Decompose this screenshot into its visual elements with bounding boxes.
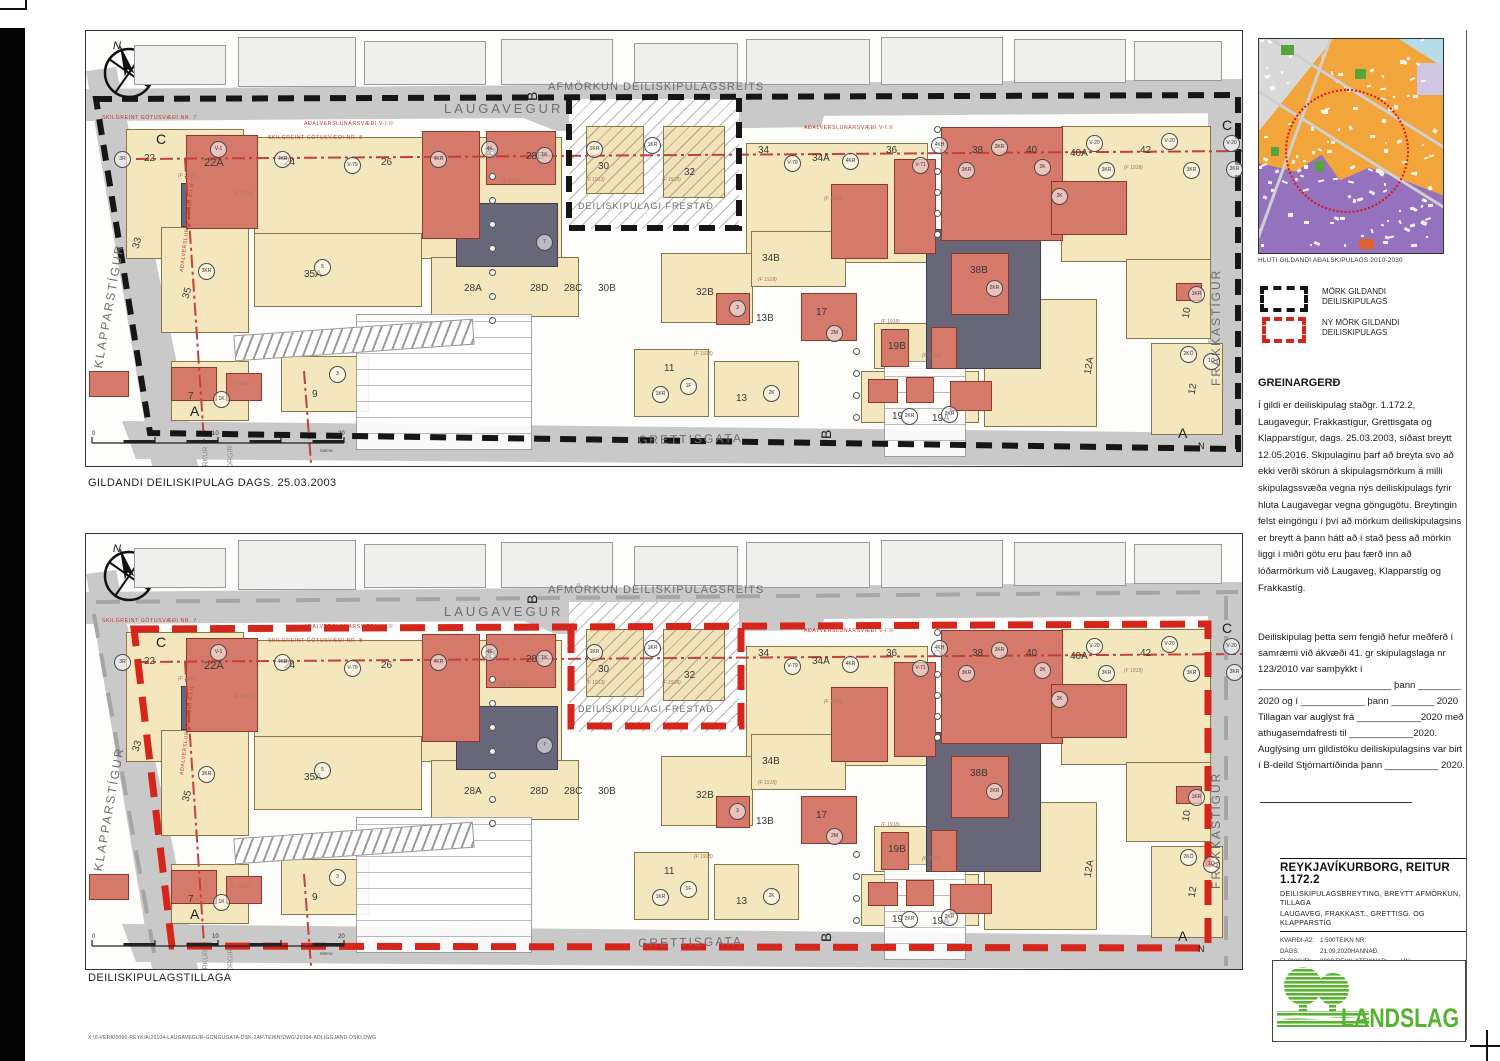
area-highlight-circle bbox=[1285, 89, 1409, 213]
zoning-badge: 4K bbox=[481, 141, 498, 158]
lot-line-dot bbox=[853, 873, 860, 880]
build-year-note: (F 1918) bbox=[502, 682, 521, 688]
zoning-badge: V-20 bbox=[1086, 135, 1103, 152]
street-name-fragment: ORGIR bbox=[228, 446, 235, 467]
zoning-badge: 1KR bbox=[644, 137, 661, 154]
building-red bbox=[226, 876, 262, 904]
title-block-cell: HANNAÐ: bbox=[1351, 947, 1393, 958]
parcel bbox=[634, 852, 709, 920]
approval-line: Tillagan var auglýst frá ____________202… bbox=[1258, 710, 1465, 726]
adjacent-building bbox=[746, 39, 870, 85]
section-letter: B bbox=[818, 430, 834, 439]
adjacent-building bbox=[881, 37, 1003, 85]
parcel bbox=[161, 227, 249, 333]
map-building bbox=[1340, 217, 1345, 220]
lot-line-dot bbox=[489, 724, 496, 731]
lot-number: 40 bbox=[1026, 648, 1037, 659]
map-building bbox=[1383, 241, 1389, 245]
section-letter: N bbox=[1198, 944, 1205, 954]
report-line: lóðarmörkum við Laugaveg, Klapparstíg og bbox=[1258, 564, 1461, 581]
plan-proposal-caption: DEILISKIPULAGSTILLAGA bbox=[88, 972, 232, 984]
adjacent-building bbox=[881, 540, 1003, 588]
zoning-badge: 2K bbox=[763, 888, 780, 905]
title-block-row: DAGS:21.09.2020HANNAÐ: bbox=[1280, 947, 1466, 958]
build-year-note: (F 1918) bbox=[824, 699, 843, 705]
legend-label-1: NÝ MÖRK GILDANDIDEILISKIPULAGS bbox=[1322, 318, 1399, 338]
zoning-badge: 3KR bbox=[198, 766, 215, 783]
zoning-badge: 2M bbox=[826, 325, 843, 342]
report-line: Laugavegur, Frakkastígur, Grettisgata og bbox=[1258, 415, 1461, 432]
section-letter: B bbox=[524, 92, 540, 101]
adjacent-building bbox=[238, 540, 356, 590]
lot-line-dot bbox=[853, 370, 860, 377]
zoning-badge: 2K bbox=[1034, 159, 1051, 176]
adjacent-building bbox=[634, 43, 738, 83]
sheet: N01020Metrar3123252729313335373941434522… bbox=[0, 0, 1500, 1061]
map-building bbox=[1411, 207, 1414, 210]
zoning-badge: 2KÖ bbox=[1180, 849, 1197, 866]
lot-line-dot bbox=[489, 820, 496, 827]
map-building bbox=[1413, 94, 1418, 97]
build-year-note: (F 1918) bbox=[881, 319, 900, 325]
lot-number: 11 bbox=[664, 866, 674, 877]
street-name: FRAKKASTÍGUR bbox=[1209, 772, 1223, 889]
zoning-badge: 2K bbox=[1034, 662, 1051, 679]
map-building bbox=[1264, 74, 1270, 79]
title-block-subtitle-2: LAUGAVEG, FRAKKAST., GRETTISG. OG KLAPPA… bbox=[1280, 909, 1466, 927]
zoning-badge: 3KR bbox=[1098, 665, 1115, 682]
lot-number: 17 bbox=[816, 307, 827, 318]
adjacent-building bbox=[364, 544, 486, 588]
zoning-badge: 4KR bbox=[274, 654, 291, 671]
zoning-badge: 7 bbox=[536, 234, 553, 251]
lot-number: 11 bbox=[664, 363, 674, 374]
parcel bbox=[634, 349, 709, 417]
report-line: Frakkastíg. bbox=[1258, 581, 1461, 598]
map-building bbox=[1330, 221, 1335, 224]
lot-line-dot bbox=[489, 197, 496, 204]
building-red bbox=[950, 884, 992, 914]
section-letter: B bbox=[524, 595, 540, 604]
zoning-badge: 2KR bbox=[901, 408, 918, 425]
lot-number: 26 bbox=[381, 157, 392, 168]
adjacent-building bbox=[1134, 41, 1222, 81]
build-year-note: (F 1913) bbox=[586, 177, 605, 183]
report-line: er breytt á þann hátt að í stað þess að … bbox=[1258, 531, 1461, 548]
lot-number: 7 bbox=[188, 391, 194, 402]
lot-number: 34 bbox=[758, 145, 769, 156]
street-name-fragment: ORGIR bbox=[228, 949, 235, 970]
map-building bbox=[1281, 71, 1284, 74]
section-letter: C bbox=[1222, 117, 1232, 133]
zoning-badge: 2KR bbox=[901, 911, 918, 928]
zone-text: SKILGREINT GÖTUSVÆÐI NR. 8 bbox=[268, 638, 363, 644]
crop-mark-bottom-right bbox=[1470, 1045, 1500, 1047]
zoning-badge: 4KR bbox=[274, 151, 291, 168]
lot-number: 12 bbox=[1187, 886, 1200, 899]
deferred-building bbox=[663, 126, 725, 198]
lot-line-dot bbox=[489, 748, 496, 755]
lot-number: 13 bbox=[736, 896, 747, 907]
building-red bbox=[171, 367, 217, 401]
map-building bbox=[1399, 209, 1402, 212]
zoning-badge: V-79 bbox=[344, 157, 361, 174]
map-building bbox=[1407, 56, 1410, 59]
zoning-badge: 3KR bbox=[198, 263, 215, 280]
parcel bbox=[714, 361, 799, 417]
lot-line-dot bbox=[489, 293, 496, 300]
zoning-badge: V-71 bbox=[912, 660, 929, 677]
zoning-badge: 1KR bbox=[652, 386, 669, 403]
report-line: 12.05.2016. Skipulaginu þarf að breyta s… bbox=[1258, 448, 1461, 465]
lot-number: 30B bbox=[598, 283, 616, 294]
zoning-badge: 3KR bbox=[1226, 664, 1243, 681]
zoning-badge: 1KR bbox=[644, 640, 661, 657]
zoning-badge: 4KR bbox=[430, 654, 447, 671]
zoning-badge: 4KH bbox=[931, 137, 948, 154]
lot-line-dot bbox=[853, 414, 860, 421]
lot-number: 34 bbox=[758, 648, 769, 659]
building-red bbox=[868, 379, 898, 403]
zoning-badge: V-20 bbox=[1161, 133, 1178, 150]
map-building bbox=[1410, 243, 1416, 247]
lot-number: 28C bbox=[564, 786, 582, 797]
zoning-badge: 5 bbox=[314, 259, 331, 276]
lot-line-dot bbox=[934, 734, 941, 741]
lot-number: 28D bbox=[530, 283, 548, 294]
lot-line-dot bbox=[934, 168, 941, 175]
lot-number: 38 bbox=[972, 145, 983, 156]
street-name: FRAKKASTÍGUR bbox=[1209, 269, 1223, 386]
map-orange-lot bbox=[1359, 239, 1374, 249]
lot-number: 22A bbox=[204, 157, 224, 169]
lot-number: 40 bbox=[1026, 145, 1037, 156]
lot-number: 30 bbox=[598, 664, 609, 675]
lot-line-dot bbox=[489, 317, 496, 324]
map-green-4 bbox=[1271, 147, 1279, 156]
map-green-1 bbox=[1281, 45, 1294, 55]
lot-line-dot bbox=[934, 629, 941, 636]
zoning-badge: 1KR bbox=[586, 141, 603, 158]
zoning-badge: 2M bbox=[826, 828, 843, 845]
zoning-badge: 7 bbox=[536, 737, 553, 754]
zoning-badge: 3R bbox=[114, 151, 131, 168]
map-building bbox=[1310, 244, 1312, 246]
left-black-strip bbox=[0, 28, 25, 1061]
adjacent-building bbox=[1014, 39, 1126, 83]
lot-number: 30 bbox=[598, 161, 609, 172]
lot-number: 32B bbox=[696, 790, 714, 801]
lot-number: 28A bbox=[464, 786, 482, 797]
zoning-badge: 2K bbox=[1051, 691, 1068, 708]
adjacent-building bbox=[746, 542, 870, 588]
building-red bbox=[89, 874, 129, 900]
building-red bbox=[868, 882, 898, 906]
lot-number: 12 bbox=[1187, 383, 1200, 396]
lot-line-dot bbox=[853, 348, 860, 355]
zoning-badge: 3KR bbox=[1098, 162, 1115, 179]
adjacent-building bbox=[238, 37, 356, 87]
zoning-badge: 3 bbox=[329, 869, 346, 886]
adjacent-building bbox=[1134, 544, 1222, 584]
building-red bbox=[226, 373, 262, 401]
street-name: LAUGAVEGUR bbox=[444, 101, 563, 116]
section-letter: C bbox=[156, 131, 166, 147]
building-red bbox=[89, 371, 129, 397]
build-year-note: (F 1918) bbox=[1124, 165, 1143, 171]
legend-label-0: MÖRK GILDANDIDEILISKIPULAGS bbox=[1322, 287, 1387, 307]
building-red bbox=[950, 381, 992, 411]
zoning-badge: 4KR bbox=[430, 151, 447, 168]
lot-number: 30B bbox=[598, 786, 616, 797]
street-name: DEILISKIPULAGI FRESTAÐ bbox=[578, 201, 714, 211]
parcel bbox=[714, 864, 799, 920]
map-building bbox=[1343, 244, 1346, 247]
lot-number: 9 bbox=[312, 892, 318, 903]
build-year-note: (F 1918) bbox=[694, 351, 713, 357]
deferred-building bbox=[586, 126, 644, 194]
approval-line: samræmi við ákvæði 41. gr skipulagslaga … bbox=[1258, 646, 1465, 662]
lot-number: 13B bbox=[756, 313, 774, 324]
report-title: GREINARGERÐ bbox=[1258, 377, 1341, 389]
lot-number: 32B bbox=[696, 287, 714, 298]
title-block-row: KVARÐI-A2:1:500TEIKN NR: bbox=[1280, 936, 1466, 947]
lot-line-dot bbox=[853, 917, 860, 924]
section-letter: A bbox=[190, 403, 199, 419]
zoning-badge: 1F bbox=[680, 378, 697, 395]
title-block-cell: TEIKN NR: bbox=[1335, 936, 1377, 947]
zoning-badge: 3 bbox=[329, 366, 346, 383]
build-year-note: (F 1918) bbox=[178, 676, 197, 682]
lot-number: 34A bbox=[812, 153, 830, 164]
legend-swatch-1 bbox=[1262, 317, 1306, 343]
zone-text: SKILGREINT GÖTUSVÆÐI NR. 8 bbox=[268, 135, 363, 141]
lot-number: 36 bbox=[886, 145, 897, 156]
build-year-note: (F 1918) bbox=[824, 196, 843, 202]
approval-line: í B-deild Stjórnartíðinda þann _________… bbox=[1258, 758, 1465, 774]
adjacent-building bbox=[134, 45, 226, 85]
map-building bbox=[1304, 221, 1309, 224]
zoning-badge: V-79 bbox=[784, 155, 801, 172]
zoning-badge: 3 bbox=[729, 803, 746, 820]
section-letter: A bbox=[1178, 425, 1187, 441]
zoning-badge: 4KH bbox=[931, 640, 948, 657]
map-building bbox=[1421, 80, 1426, 82]
lot-number: 26 bbox=[381, 660, 392, 671]
building-red bbox=[422, 634, 480, 742]
approval-line: 123/2010 var samþykkt í bbox=[1258, 662, 1465, 678]
report-line: skipulagssvæða vegna nýs deiliskipulags … bbox=[1258, 481, 1461, 498]
map-building bbox=[1426, 235, 1429, 237]
sheet-right-rule bbox=[1466, 30, 1467, 1040]
map-building bbox=[1384, 235, 1389, 239]
street-name-fragment: RKUR bbox=[203, 447, 210, 467]
building-red bbox=[931, 327, 957, 369]
overview-map-caption: HLUTI GILDANDI AÐALSKIPULAGS 2010-2030 bbox=[1258, 257, 1403, 264]
zoning-badge: 1KR bbox=[652, 889, 669, 906]
build-year-note: (F 1918) bbox=[1124, 668, 1143, 674]
report-line: Í gildi er deiliskipulag staðgr. 1.172.2… bbox=[1258, 398, 1461, 415]
zone-text: AÐALVERSLUNARSVÆÐI V-I.II bbox=[304, 624, 393, 630]
lot-line-dot bbox=[934, 671, 941, 678]
building-red bbox=[906, 880, 934, 906]
zoning-badge: 2KR bbox=[986, 280, 1003, 297]
zone-text: SKILGREINT GÖTUSVÆÐI NR. 7 bbox=[102, 115, 197, 121]
report-line: liggi í miðri götu eru þau færð inn að bbox=[1258, 547, 1461, 564]
build-year-note: (F 1918) bbox=[231, 884, 250, 890]
adjacent-building bbox=[634, 546, 738, 586]
report-line: felst eingöngu í því að mörkum deiliskip… bbox=[1258, 514, 1461, 531]
title-block-cell: 21.09.2020 bbox=[1320, 947, 1351, 958]
lot-number: 28A bbox=[464, 283, 482, 294]
map-building bbox=[1289, 55, 1292, 58]
lot-line-dot bbox=[934, 126, 941, 133]
plan-existing-caption: GILDANDI DEILISKIPULAG DAGS. 25.03.2003 bbox=[88, 477, 337, 489]
map-green-2 bbox=[1355, 69, 1366, 79]
lot-line-dot bbox=[489, 676, 496, 683]
sidebar: HLUTI GILDANDI AÐALSKIPULAGS 2010-2030 M… bbox=[1252, 30, 1466, 1042]
building-red bbox=[422, 131, 480, 239]
zoning-badge: 1KR bbox=[1188, 286, 1205, 303]
lot-line-dot bbox=[853, 851, 860, 858]
zoning-badge: 4KR bbox=[842, 656, 859, 673]
crop-mark-top-left bbox=[0, 8, 26, 10]
build-year-note: (F 1918) bbox=[178, 173, 197, 179]
zoning-badge: 1K bbox=[536, 650, 553, 667]
lot-number: 38B bbox=[970, 768, 988, 779]
adjacent-building bbox=[134, 548, 226, 588]
lot-line-dot bbox=[934, 713, 941, 720]
zoning-badge: 2KÖ bbox=[1180, 346, 1197, 363]
title-block-title: REYKJAVÍKURBORG, REITUR 1.172.2 bbox=[1280, 862, 1466, 886]
lot-number: 42 bbox=[1140, 648, 1151, 659]
building-red bbox=[931, 830, 957, 872]
lot-number: 19B bbox=[888, 844, 906, 855]
parcel bbox=[254, 736, 422, 810]
lot-line-dot bbox=[934, 189, 941, 196]
street-name: AFMÖRKUN DEILISKIPULAGSREITS bbox=[548, 81, 764, 93]
lot-line-dot bbox=[489, 772, 496, 779]
zoning-badge: V-1 bbox=[210, 141, 227, 158]
approval-line: 2020 og í ____________ þann ________ 202… bbox=[1258, 694, 1465, 710]
lot-number: 17 bbox=[816, 810, 827, 821]
lot-number: 32 bbox=[684, 670, 695, 681]
report-line: ekki verði skörun á skipulagsmörkum á mi… bbox=[1258, 464, 1461, 481]
street-name: DEILISKIPULAGI FRESTAÐ bbox=[578, 704, 714, 714]
lot-line-dot bbox=[853, 392, 860, 399]
zoning-badge: 3KR bbox=[958, 665, 975, 682]
lot-line-dot bbox=[934, 210, 941, 217]
zone-text: AÐALVERSLUNARSVÆÐI V-I.II bbox=[804, 628, 893, 634]
parcel bbox=[254, 233, 422, 307]
zoning-badge: V-1 bbox=[210, 644, 227, 661]
zoning-badge: 2KR bbox=[941, 406, 958, 423]
map-building bbox=[1261, 244, 1264, 247]
approval-line: Auglýsing um gildistöku deiliskipulagsin… bbox=[1258, 742, 1465, 758]
zoning-badge: V-20 bbox=[1223, 135, 1240, 152]
title-block-cell: 1:500 bbox=[1320, 936, 1335, 947]
zone-text: SKILGREINT GÖTUSVÆÐI NR. 7 bbox=[102, 618, 197, 624]
overview-map bbox=[1258, 38, 1444, 254]
lot-line-dot bbox=[934, 692, 941, 699]
lot-number: 36 bbox=[886, 648, 897, 659]
lot-number: 32 bbox=[684, 167, 695, 178]
lot-number: 7 bbox=[188, 894, 194, 905]
building-red bbox=[894, 159, 936, 254]
map-building bbox=[1393, 95, 1396, 98]
street-name: LAUGAVEGUR bbox=[444, 604, 563, 619]
map-building bbox=[1422, 144, 1425, 146]
approval-line: athugasemdafresti til ____________2020. bbox=[1258, 726, 1465, 742]
zone-text: AÐALVERSLUNARSVÆÐI V-I.II bbox=[304, 121, 393, 127]
file-path: X:\0-VERK\0000-REYK\A\20104-LAUGAVEGUR-G… bbox=[88, 1035, 376, 1041]
lot-number: 42 bbox=[1140, 145, 1151, 156]
street-name-fragment: RKUR bbox=[203, 950, 210, 970]
title-block-subtitle-1: DEILISKIPULAGSBREYTING, BREYTT AFMÖRKUN,… bbox=[1280, 889, 1466, 907]
build-year-note: (F 1918) bbox=[922, 856, 941, 862]
build-year-note: (F 1918) bbox=[881, 822, 900, 828]
zoning-badge: 3 bbox=[729, 300, 746, 317]
build-year-note: (F 1913) bbox=[586, 680, 605, 686]
signature-line bbox=[1260, 802, 1412, 803]
approval-line: Deiliskipulag þetta sem fengið hefur með… bbox=[1258, 630, 1465, 646]
zoning-badge: 2K bbox=[1051, 188, 1068, 205]
lot-line-dot bbox=[489, 173, 496, 180]
section-letter: C bbox=[156, 634, 166, 650]
zoning-badge: 1F bbox=[680, 881, 697, 898]
zoning-badge: 1K bbox=[536, 147, 553, 164]
zoning-badge: 2KR bbox=[941, 909, 958, 926]
build-year-note: (F 1918) bbox=[502, 179, 521, 185]
build-year-note: (F 1918) bbox=[662, 177, 681, 183]
zoning-badge: 1KR bbox=[1188, 789, 1205, 806]
lot-number: 34A bbox=[812, 656, 830, 667]
lot-line-dot bbox=[489, 700, 496, 707]
zone-text: AÐALVERSLUNARSVÆÐI V-I.II bbox=[804, 125, 893, 131]
zoning-badge: 3KR bbox=[1183, 665, 1200, 682]
report-line: Klapparstígur, dags. 25.03.2003, síðast … bbox=[1258, 431, 1461, 448]
zoning-badge: 4KR bbox=[842, 153, 859, 170]
zoning-badge: 4K bbox=[481, 644, 498, 661]
zoning-badge: 3KR bbox=[1183, 162, 1200, 179]
plan-existing: N01020Metrar3123252729313335373941434522… bbox=[85, 30, 1243, 467]
approval-text: Deiliskipulag þetta sem fengið hefur með… bbox=[1258, 630, 1465, 774]
lot-number: 9 bbox=[312, 389, 318, 400]
zoning-badge: 3KR bbox=[991, 642, 1008, 659]
lot-number: 13 bbox=[736, 393, 747, 404]
lot-number: 22 bbox=[144, 153, 155, 164]
zoning-badge: 2K bbox=[763, 385, 780, 402]
lot-number: 38 bbox=[972, 648, 983, 659]
adjacent-building bbox=[501, 542, 613, 588]
build-year-note: (F 1913) bbox=[234, 694, 253, 700]
parcel bbox=[161, 730, 249, 836]
landslag-logo-art: LANDSLAG bbox=[1273, 961, 1463, 1039]
lot-line-dot bbox=[853, 895, 860, 902]
lot-number: 10 bbox=[1181, 810, 1194, 823]
zoning-badge: 1K bbox=[213, 391, 230, 408]
plan-proposal: N01020Metrar3123252729313335373941434522… bbox=[85, 533, 1243, 970]
zoning-badge: V-71 bbox=[912, 157, 929, 174]
map-building bbox=[1288, 213, 1293, 217]
title-block-cell: DAGS: bbox=[1280, 947, 1320, 958]
crop-mark-bottom-right-v bbox=[1486, 1030, 1488, 1061]
lot-number: 22 bbox=[144, 656, 155, 667]
zoning-badge: 1KR bbox=[586, 644, 603, 661]
lot-line-dot bbox=[934, 231, 941, 238]
zoning-badge: 1K bbox=[213, 894, 230, 911]
lot-number: 40A bbox=[1070, 148, 1088, 159]
